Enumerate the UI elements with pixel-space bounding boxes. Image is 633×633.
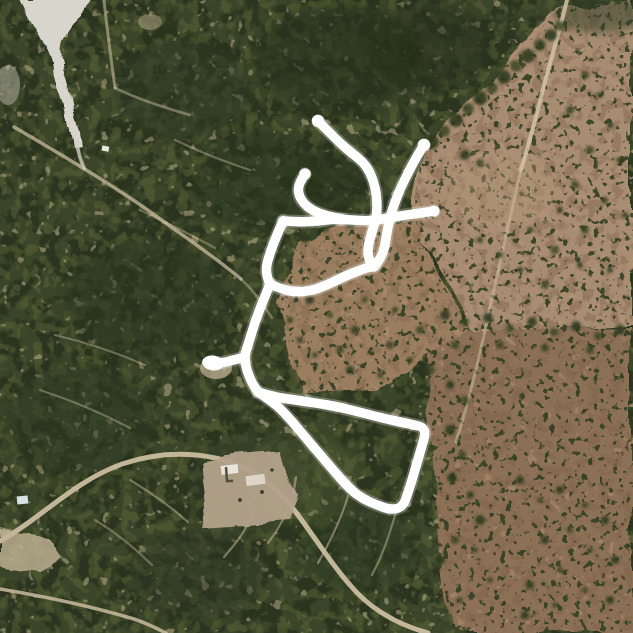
route-endpoint-marker <box>312 115 324 127</box>
terrain <box>0 0 633 633</box>
satellite-map[interactable] <box>0 0 633 633</box>
pool <box>17 495 29 504</box>
route-endpoint-marker <box>418 139 430 151</box>
route-endpoint-marker <box>428 205 439 216</box>
route-endpoint-marker <box>299 168 311 180</box>
satellite-map-canvas <box>0 0 633 633</box>
